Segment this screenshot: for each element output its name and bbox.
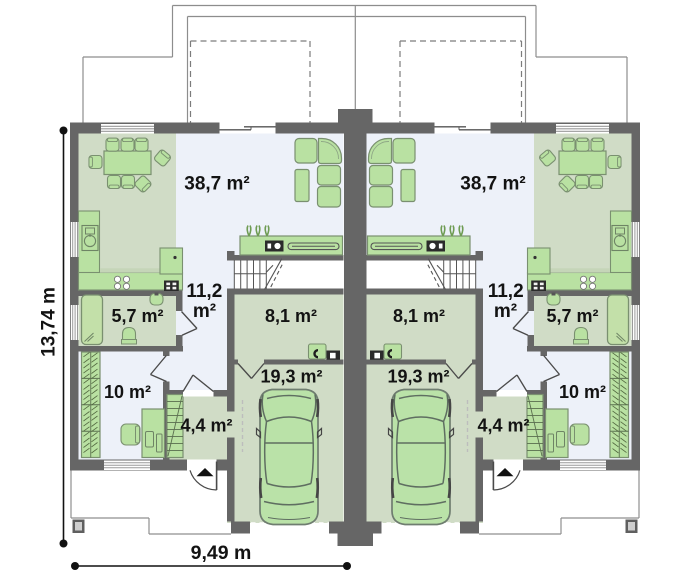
svg-text:10 m²: 10 m² xyxy=(104,382,151,402)
svg-text:19,3 m²: 19,3 m² xyxy=(260,367,322,387)
svg-text:38,7 m²: 38,7 m² xyxy=(184,174,249,195)
svg-text:m²: m² xyxy=(494,301,517,322)
svg-text:38,7 m²: 38,7 m² xyxy=(460,174,525,195)
svg-text:8,1 m²: 8,1 m² xyxy=(265,306,317,326)
svg-text:13,74 m: 13,74 m xyxy=(39,287,60,357)
svg-text:8,1 m²: 8,1 m² xyxy=(393,306,445,326)
svg-text:9,49 m: 9,49 m xyxy=(191,542,252,564)
svg-text:5,7 m²: 5,7 m² xyxy=(546,306,598,326)
svg-text:5,7 m²: 5,7 m² xyxy=(111,306,163,326)
svg-text:m²: m² xyxy=(193,301,216,322)
svg-text:4,4 m²: 4,4 m² xyxy=(477,416,529,436)
svg-text:10 m²: 10 m² xyxy=(559,382,606,402)
svg-text:4,4 m²: 4,4 m² xyxy=(180,416,232,436)
svg-text:11,2: 11,2 xyxy=(488,281,524,302)
svg-text:11,2: 11,2 xyxy=(186,281,222,302)
svg-text:19,3 m²: 19,3 m² xyxy=(387,367,449,387)
